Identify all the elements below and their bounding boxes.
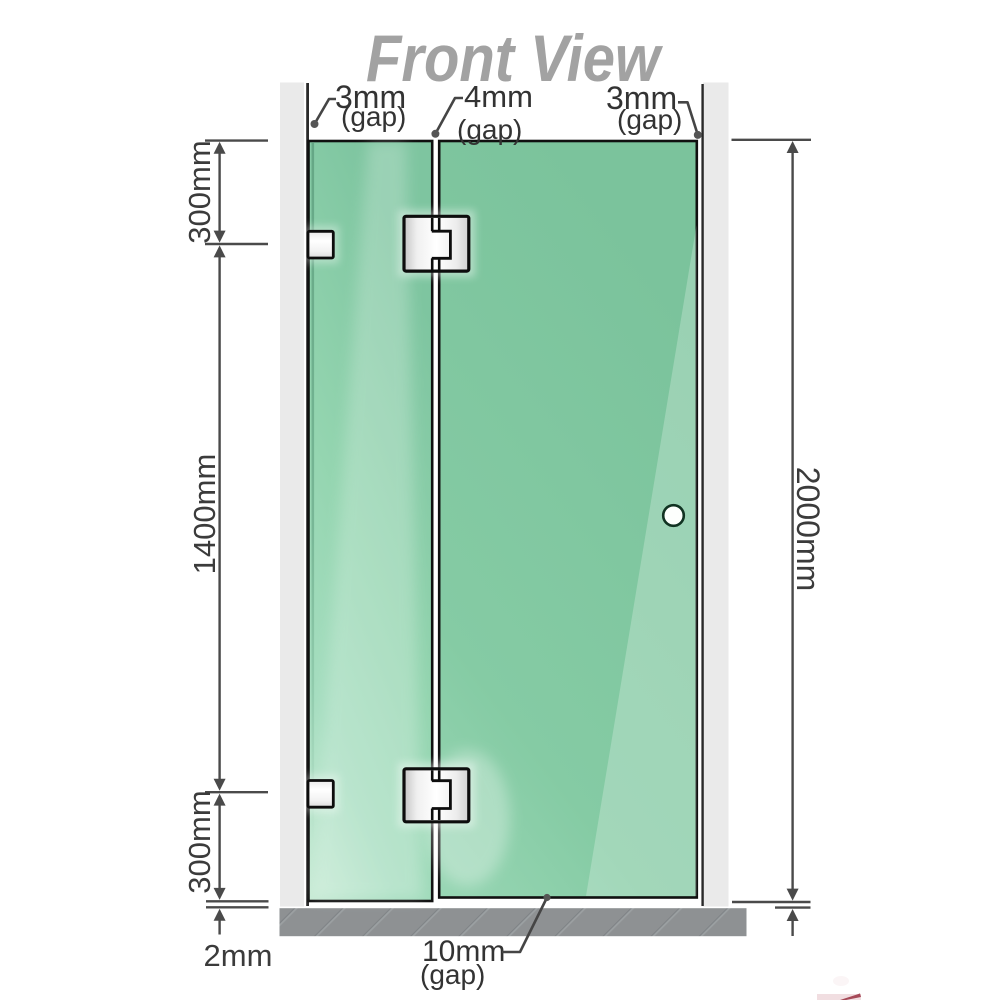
svg-text:4mm: 4mm bbox=[464, 79, 533, 114]
svg-text:(gap): (gap) bbox=[341, 101, 406, 132]
svg-text:(gap): (gap) bbox=[457, 114, 522, 145]
svg-text:(gap): (gap) bbox=[420, 959, 485, 990]
svg-text:1400mm: 1400mm bbox=[187, 454, 222, 575]
svg-text:300mm: 300mm bbox=[182, 790, 217, 893]
svg-text:(gap): (gap) bbox=[617, 104, 682, 135]
svg-text:2mm: 2mm bbox=[204, 938, 273, 973]
svg-text:2000mm: 2000mm bbox=[790, 467, 826, 592]
svg-text:300mm: 300mm bbox=[182, 140, 217, 243]
